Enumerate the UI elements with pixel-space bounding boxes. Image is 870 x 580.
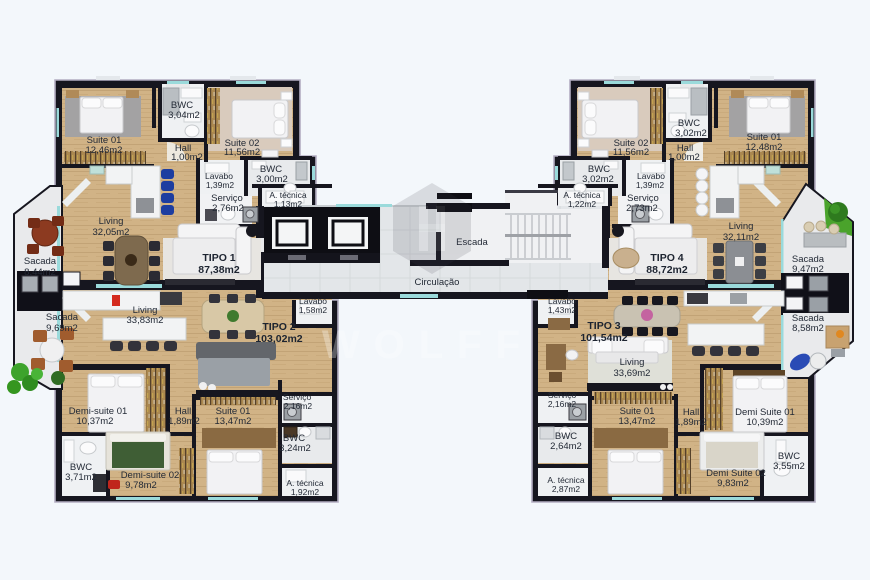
svg-text:WOLFF: WOLFF xyxy=(322,323,534,367)
svg-text:TIPO 3: TIPO 3 xyxy=(587,320,620,332)
svg-text:1,39m2: 1,39m2 xyxy=(206,180,235,190)
svg-text:1,13m2: 1,13m2 xyxy=(274,199,303,209)
svg-text:Sacada: Sacada xyxy=(46,312,79,323)
svg-text:Sacada: Sacada xyxy=(24,256,57,267)
svg-text:2,87m2: 2,87m2 xyxy=(552,484,581,494)
svg-text:1,43m2: 1,43m2 xyxy=(548,305,577,315)
svg-text:2,16m2: 2,16m2 xyxy=(548,399,577,409)
svg-text:13,47m2: 13,47m2 xyxy=(215,416,252,427)
svg-text:103,02m2: 103,02m2 xyxy=(255,333,302,345)
svg-text:Living: Living xyxy=(99,216,124,227)
svg-text:3,55m2: 3,55m2 xyxy=(773,461,805,472)
svg-text:3,04m2: 3,04m2 xyxy=(168,110,200,121)
svg-text:8,44m2: 8,44m2 xyxy=(24,267,56,278)
svg-text:11,56m2: 11,56m2 xyxy=(613,147,649,158)
svg-text:2,76m2: 2,76m2 xyxy=(212,203,244,214)
svg-text:9,83m2: 9,83m2 xyxy=(717,478,749,489)
svg-text:1,58m2: 1,58m2 xyxy=(299,305,328,315)
svg-text:32,11m2: 32,11m2 xyxy=(723,232,759,243)
svg-text:Living: Living xyxy=(729,221,754,232)
svg-text:3,02m2: 3,02m2 xyxy=(582,174,614,185)
svg-text:8,58m2: 8,58m2 xyxy=(792,323,824,334)
svg-text:Circulação: Circulação xyxy=(415,277,460,288)
svg-text:9,47m2: 9,47m2 xyxy=(792,264,824,275)
svg-text:87,38m2: 87,38m2 xyxy=(198,264,240,276)
svg-text:3,00m2: 3,00m2 xyxy=(256,174,288,185)
svg-text:1,00m2: 1,00m2 xyxy=(171,152,203,163)
svg-text:TIPO 1: TIPO 1 xyxy=(202,252,235,264)
svg-text:10,39m2: 10,39m2 xyxy=(747,417,784,428)
svg-text:12,46m2: 12,46m2 xyxy=(86,145,123,156)
svg-text:1,92m2: 1,92m2 xyxy=(291,487,320,497)
svg-text:3,24m2: 3,24m2 xyxy=(279,443,311,454)
svg-text:TIPO 2: TIPO 2 xyxy=(262,321,295,333)
svg-text:1,00m2: 1,00m2 xyxy=(668,152,700,163)
svg-text:12,48m2: 12,48m2 xyxy=(746,142,783,153)
svg-text:9,78m2: 9,78m2 xyxy=(125,480,157,491)
svg-text:11,56m2: 11,56m2 xyxy=(224,147,260,158)
svg-text:1,89m2: 1,89m2 xyxy=(675,417,707,428)
svg-text:2,64m2: 2,64m2 xyxy=(550,441,582,452)
svg-text:1,89m2: 1,89m2 xyxy=(168,416,200,427)
svg-text:3,71m2: 3,71m2 xyxy=(65,472,97,483)
svg-text:3,02m2: 3,02m2 xyxy=(675,128,707,139)
svg-text:32,05m2: 32,05m2 xyxy=(93,227,130,238)
svg-text:9,69m2: 9,69m2 xyxy=(46,323,78,334)
svg-text:101,54m2: 101,54m2 xyxy=(580,332,627,344)
svg-text:1,22m2: 1,22m2 xyxy=(568,199,597,209)
svg-text:33,69m2: 33,69m2 xyxy=(614,368,651,379)
svg-text:Living: Living xyxy=(620,357,645,368)
svg-text:33,83m2: 33,83m2 xyxy=(127,315,164,326)
svg-text:10,37m2: 10,37m2 xyxy=(77,416,114,427)
svg-text:13,47m2: 13,47m2 xyxy=(619,416,656,427)
svg-text:1,39m2: 1,39m2 xyxy=(636,180,665,190)
svg-text:TIPO 4: TIPO 4 xyxy=(650,252,683,264)
svg-text:2,73m2: 2,73m2 xyxy=(626,203,658,214)
svg-text:2,16m2: 2,16m2 xyxy=(284,401,313,411)
svg-text:88,72m2: 88,72m2 xyxy=(646,264,688,276)
